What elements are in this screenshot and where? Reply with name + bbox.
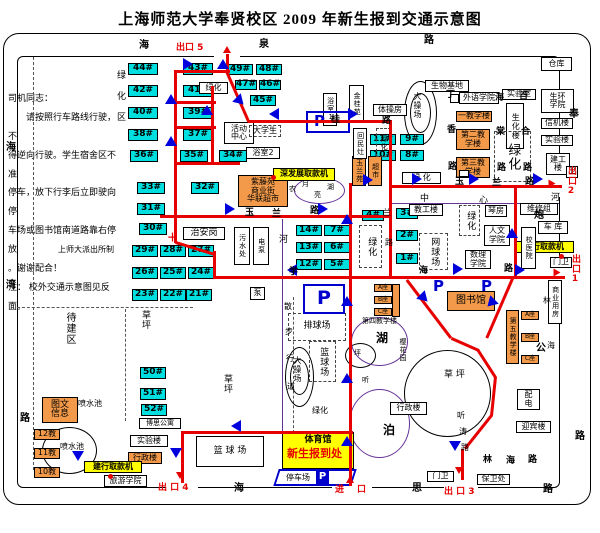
b-污水处: 污水处 xyxy=(234,227,250,265)
b-仓库: 仓库 xyxy=(541,57,572,71)
b-第二教: 第二教 学楼 xyxy=(456,129,490,150)
label-涛: 涛 xyxy=(459,428,467,436)
label-路: 路 xyxy=(385,239,393,247)
b-C座: C座 xyxy=(374,308,392,316)
blue-direction-arrow-16 xyxy=(348,108,358,120)
b-篮 球 场: 篮 球 场 xyxy=(196,436,264,467)
label-玉: 玉 xyxy=(245,209,254,218)
b-建行取款机: 建行取款机 xyxy=(84,461,142,473)
blue-direction-arrow-0 xyxy=(217,59,229,69)
red-route-diagonal-8 xyxy=(461,449,464,480)
label-丁: 丁 xyxy=(446,91,455,100)
b-35#: 35# xyxy=(180,150,208,162)
b-47#: 47# xyxy=(235,80,257,90)
blue-direction-arrow-19 xyxy=(269,108,279,120)
label-林: 林 xyxy=(483,456,492,465)
label-路: 路 xyxy=(461,444,469,452)
b-篮球场: 篮球场 xyxy=(309,341,336,382)
b-14#: 14# xyxy=(296,225,322,236)
b-24#: 24# xyxy=(188,267,214,279)
blue-direction-arrow-7 xyxy=(341,436,353,446)
b-7#: 7# xyxy=(324,225,350,236)
b-32#: 32# xyxy=(191,182,219,194)
blue-direction-arrow-33 xyxy=(72,451,84,461)
b-大学生: 大学生 xyxy=(249,125,281,137)
label-上师大派出所制: 上师大派出所制 xyxy=(58,246,114,254)
label-坪: 坪 xyxy=(354,350,361,357)
red-direction-arrow-32 xyxy=(455,467,463,474)
label-海: 海 xyxy=(495,94,504,103)
label-海: 海 xyxy=(234,484,244,494)
b-绿化: 绿化 xyxy=(494,131,531,182)
label-湖: 湖 xyxy=(376,332,388,344)
b-49#: 49# xyxy=(227,64,253,75)
label-泉: 泉 xyxy=(259,40,269,50)
b-44#: 44# xyxy=(128,63,158,75)
blue-direction-arrow-22 xyxy=(170,448,182,458)
label-河: 河 xyxy=(551,194,560,203)
blue-direction-arrow-1 xyxy=(165,94,177,104)
label-亮: 亮 xyxy=(314,192,321,199)
label-P: P xyxy=(481,279,492,294)
label-路: 路 xyxy=(504,265,513,274)
blue-direction-arrow-3 xyxy=(201,105,213,115)
label-草坪: 草坪 xyxy=(140,310,149,330)
label-路: 路 xyxy=(382,117,391,126)
blue-direction-arrow-4 xyxy=(341,214,353,224)
blue-direction-arrow-6 xyxy=(341,373,353,383)
b-22#: 22# xyxy=(160,289,186,301)
label-奉: 奉 xyxy=(569,110,579,120)
b-26#: 26# xyxy=(132,267,158,279)
label-海: 海 xyxy=(419,267,428,276)
label-出口5: 出口 5 xyxy=(176,44,203,53)
label-路: 路 xyxy=(20,414,30,424)
b-21#: 21# xyxy=(186,289,212,301)
b-排球场: 排球场 xyxy=(288,313,346,341)
b-教工楼: 教工楼 xyxy=(409,204,443,216)
red-direction-arrow-29 xyxy=(549,179,556,187)
b-泵: 泵 xyxy=(250,287,265,300)
label-中: 中 xyxy=(420,195,429,204)
label-玉: 玉 xyxy=(455,178,464,187)
label-路: 路 xyxy=(543,485,553,495)
blue-direction-arrow-11 xyxy=(318,203,328,215)
label-海: 海 xyxy=(547,342,555,350)
label-兰: 兰 xyxy=(492,179,501,188)
b-电泵: 电泵 xyxy=(253,227,269,265)
b-33#: 33# xyxy=(137,182,165,194)
label-听: 听 xyxy=(362,377,369,384)
label-绿: 绿 xyxy=(117,72,126,81)
label-香: 香 xyxy=(447,126,456,135)
b-28#: 28# xyxy=(160,245,186,257)
b-外语学院: 外语学院 xyxy=(459,92,499,104)
label-海: 海 xyxy=(139,41,149,51)
b-数理: 数理 学院 xyxy=(465,250,491,269)
b-实验楼: 实验楼 xyxy=(130,435,168,447)
label-听: 听 xyxy=(457,412,465,420)
b-10教: 10教 xyxy=(34,467,60,478)
label-河: 河 xyxy=(279,236,288,245)
label-学: 学 xyxy=(289,268,298,277)
b-25#: 25# xyxy=(160,267,186,279)
ellipse-area-5 xyxy=(404,350,491,437)
label-步: 步 xyxy=(285,328,293,336)
b-38#: 38# xyxy=(128,129,158,141)
label-停车场: 停车场 xyxy=(286,474,310,482)
b-51#: 51# xyxy=(140,388,166,400)
label-第四教学楼: 第四教学楼 xyxy=(362,318,397,325)
label-思: 思 xyxy=(412,484,422,494)
path-line-3 xyxy=(17,307,193,308)
b-回民灶: 回民灶 xyxy=(353,128,367,159)
b-6#: 6# xyxy=(324,242,350,253)
red-direction-arrow-31 xyxy=(176,472,184,479)
label-路: 路 xyxy=(310,207,319,216)
label-公: 公 xyxy=(536,344,546,354)
b-13#: 13# xyxy=(296,242,322,253)
b-5#: 5# xyxy=(324,259,350,270)
b-40#: 40# xyxy=(128,107,158,119)
b-图文: 图文 信息 xyxy=(42,397,78,423)
red-route-segment-8 xyxy=(181,431,353,434)
label-兰: 兰 xyxy=(272,210,281,219)
blue-direction-arrow-21 xyxy=(231,420,241,432)
b-shape-54 xyxy=(459,170,469,177)
path-line-4 xyxy=(125,309,126,421)
label-进: 进 xyxy=(335,486,344,495)
blue-direction-arrow-12 xyxy=(363,174,373,186)
label-口: 口 xyxy=(357,486,366,495)
red-route-segment-0 xyxy=(174,70,230,73)
blue-direction-arrow-15 xyxy=(533,173,543,185)
b-9#: 9# xyxy=(400,134,424,145)
label-道: 道 xyxy=(287,383,295,391)
b-绿化: 绿化 xyxy=(459,205,480,236)
b-门卫: 门卫 xyxy=(427,471,454,482)
red-direction-arrow-28 xyxy=(346,476,354,483)
b-31#: 31# xyxy=(137,203,165,215)
label-草坪: 草坪 xyxy=(222,374,231,394)
blue-direction-arrow-23 xyxy=(449,441,461,451)
b-迎宾楼: 迎宾楼 xyxy=(516,421,551,433)
red-route-segment-5 xyxy=(389,185,562,188)
label-兰: 兰 xyxy=(383,209,391,217)
label-区: 区 xyxy=(117,114,126,123)
label-出口1: 出口1 xyxy=(570,254,579,285)
red-route-segment-1 xyxy=(174,101,216,104)
b-12教: 12教 xyxy=(34,429,60,440)
b-P: P xyxy=(303,284,345,314)
b-体操房: 体操房 xyxy=(373,104,407,116)
b-绿化: 绿化 xyxy=(359,225,382,268)
b-车 库: 车 库 xyxy=(538,221,568,234)
label-路: 路 xyxy=(525,178,534,187)
label-P: P xyxy=(433,279,444,294)
b-保卫处: 保卫处 xyxy=(477,474,510,485)
blue-direction-arrow-2 xyxy=(165,136,177,146)
label-棠: 棠 xyxy=(496,128,505,137)
b-B座: B座 xyxy=(521,333,539,342)
b-48#: 48# xyxy=(256,64,282,75)
b-A座: A座 xyxy=(374,284,392,292)
label-大操场: 大操场 xyxy=(413,92,421,119)
b-42#: 42# xyxy=(128,85,158,97)
label-路: 路 xyxy=(497,164,506,173)
ellipse-area-8 xyxy=(349,389,410,458)
label-心: 心 xyxy=(479,197,488,206)
label-大操场: 大操场 xyxy=(293,356,301,383)
marker-dot-1 xyxy=(559,254,564,259)
b-8#: 8# xyxy=(400,150,424,161)
blue-direction-arrow-13 xyxy=(412,173,422,185)
red-direction-arrow-30 xyxy=(554,268,561,276)
label-海: 海 xyxy=(6,143,16,153)
b-52#: 52# xyxy=(141,404,167,416)
label-泊: 泊 xyxy=(383,424,395,436)
b-琴房: 琴房 xyxy=(485,205,507,217)
label-农: 农 xyxy=(289,186,296,193)
b-A座: A座 xyxy=(521,311,539,320)
label-林: 林 xyxy=(543,297,551,305)
label-出口3: 出 口 3 xyxy=(444,488,475,497)
label-桂: 桂 xyxy=(331,116,340,125)
blue-direction-arrow-5 xyxy=(341,296,353,306)
label-合: 合 xyxy=(521,128,530,137)
b-实验楼: 实验楼 xyxy=(541,135,573,146)
b-B座: B座 xyxy=(374,296,392,304)
blue-direction-arrow-10 xyxy=(225,203,235,215)
b-46#: 46# xyxy=(259,80,281,90)
b-36#: 36# xyxy=(130,150,158,162)
red-route-segment-10 xyxy=(211,86,214,165)
b-12#: 12# xyxy=(296,259,322,270)
label-湖: 湖 xyxy=(327,184,334,191)
red-route-segment-4 xyxy=(248,120,392,123)
b-2#: 2# xyxy=(396,230,418,241)
b-P: P xyxy=(316,471,329,484)
b-行政楼: 行政楼 xyxy=(390,402,427,415)
label-路: 路 xyxy=(528,456,537,465)
label-出口4: 出 口 4 xyxy=(158,484,189,493)
b-37#: 37# xyxy=(183,129,213,141)
label-路: 路 xyxy=(575,432,585,442)
label-喷水池: 喷水池 xyxy=(78,400,102,408)
b-shape-63 xyxy=(392,284,400,317)
label-化: 化 xyxy=(117,93,126,102)
path-line-5 xyxy=(33,57,34,470)
b-1#: 1# xyxy=(396,253,418,264)
b-30#: 30# xyxy=(139,223,167,235)
b-50#: 50# xyxy=(140,367,166,379)
marker-dot-2 xyxy=(108,474,113,479)
label-海: 海 xyxy=(506,457,515,466)
label-绿化: 绿化 xyxy=(312,407,328,415)
map-canvas: 44#43#42#41#40#39#38#37#36#35#34#49#48#4… xyxy=(0,0,600,533)
b-治安岗: 治安岗 xyxy=(183,227,225,240)
campus-map: 上海师范大学奉贤校区 2009 年新生报到交通示意图 司机同志： 请按照行车路线… xyxy=(0,0,600,533)
label-喷水池: 喷水池 xyxy=(60,443,84,451)
b-11教: 11教 xyxy=(34,448,60,459)
label-路: 路 xyxy=(448,163,457,172)
b-校医院: 校医院 xyxy=(521,227,536,269)
b-23#: 23# xyxy=(132,289,158,301)
red-direction-arrow-27 xyxy=(223,46,231,53)
b-配: 配 电 xyxy=(517,389,540,410)
label-路: 路 xyxy=(424,36,434,46)
blue-direction-arrow-8 xyxy=(506,228,518,238)
red-route-segment-12 xyxy=(389,120,392,279)
b-C座: C座 xyxy=(521,355,539,364)
blue-direction-arrow-9 xyxy=(183,58,193,70)
label-月: 月 xyxy=(302,181,309,188)
label-百: 百 xyxy=(519,93,528,102)
b-第五教学楼: 第五教学楼 xyxy=(506,310,519,364)
blue-direction-arrow-17 xyxy=(453,263,463,275)
b-博思公寓: 博思公寓 xyxy=(139,418,181,429)
label-路: 路 xyxy=(523,164,532,173)
b-29#: 29# xyxy=(132,245,158,257)
label-草坪: 草 坪 xyxy=(444,371,465,380)
marker-dot-0 xyxy=(271,175,276,180)
label-待建区: 待建区 xyxy=(64,312,74,345)
label-湾: 湾 xyxy=(6,281,16,291)
label-新生报到处: 新生报到处 xyxy=(287,448,342,459)
label-樱花园: 樱花园 xyxy=(399,338,406,362)
blue-direction-arrow-14 xyxy=(469,173,479,185)
label-炮: 炮 xyxy=(534,211,544,221)
b-34#: 34# xyxy=(219,150,247,162)
label-＋: ＋ xyxy=(167,232,178,243)
blue-direction-arrow-18 xyxy=(515,264,525,276)
b-一教学楼: 一教学楼 xyxy=(456,111,492,122)
b-网球场: 网球场 xyxy=(419,233,448,270)
b-45#: 45# xyxy=(250,95,276,106)
label-散: 散 xyxy=(284,303,292,311)
red-route-segment-3 xyxy=(174,162,240,165)
label-出口2: 出口2 xyxy=(566,166,575,197)
red-route-segment-2 xyxy=(174,126,216,129)
b-浴室2: 浴室2 xyxy=(246,147,280,159)
